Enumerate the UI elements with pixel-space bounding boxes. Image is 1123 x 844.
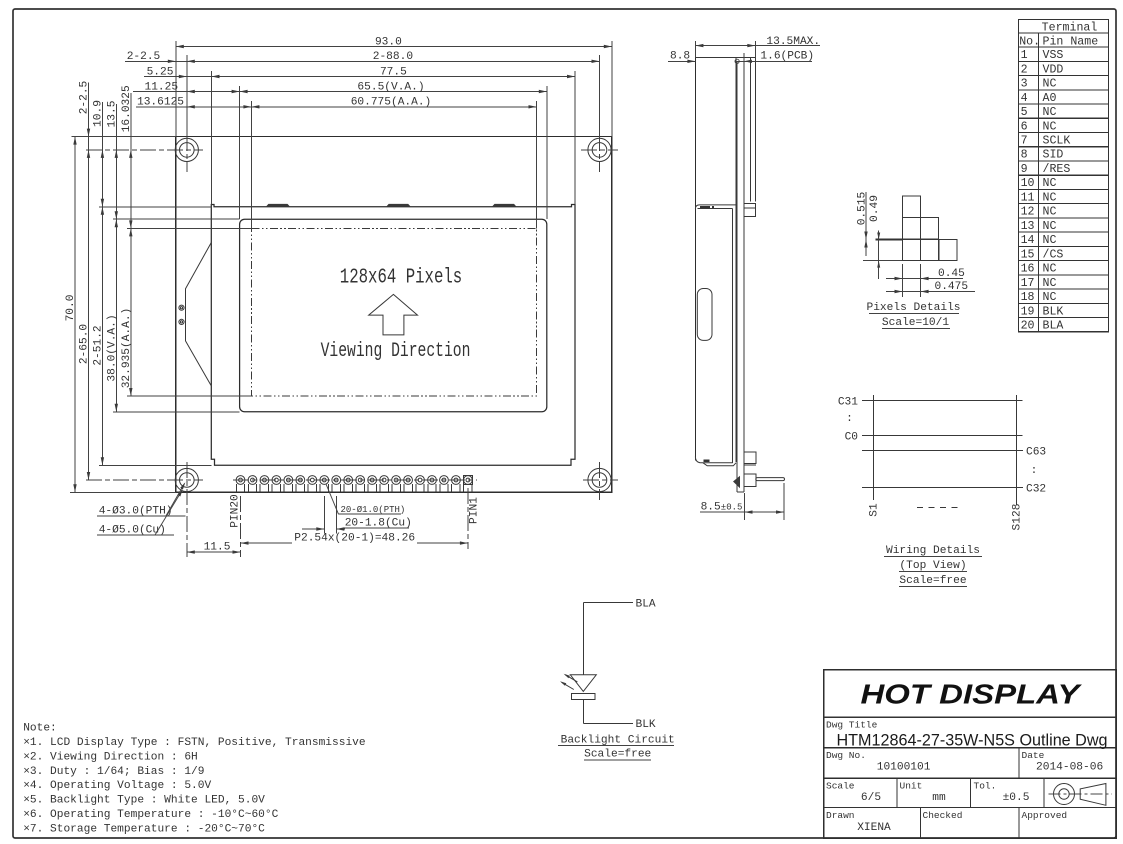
svg-text:128x64 Pixels: 128x64 Pixels [340, 264, 462, 289]
svg-text:32.935(A.A.): 32.935(A.A.) [121, 308, 133, 389]
svg-text:93.0: 93.0 [375, 36, 402, 48]
svg-text:Scale=10/1: Scale=10/1 [882, 317, 949, 329]
svg-text:NC: NC [1043, 220, 1057, 233]
svg-text:4: 4 [1021, 92, 1028, 105]
svg-text:11.5: 11.5 [204, 541, 231, 553]
svg-text:Pixels Details: Pixels Details [867, 302, 961, 314]
svg-text::: : [1031, 465, 1038, 477]
svg-text:×5. Backlight Type : White LED: ×5. Backlight Type : White LED, 5.0V [23, 795, 265, 807]
svg-text:C0: C0 [845, 432, 859, 444]
svg-text:14: 14 [1021, 234, 1035, 247]
svg-text:NC: NC [1043, 206, 1057, 219]
svg-text:6: 6 [1021, 120, 1028, 133]
svg-text:Scale=free: Scale=free [584, 749, 651, 761]
svg-text:19: 19 [1021, 305, 1035, 318]
svg-text:A0: A0 [1043, 92, 1057, 105]
svg-text:77.5: 77.5 [380, 66, 407, 78]
svg-text::: : [846, 413, 853, 425]
svg-text:8.5: 8.5 [701, 502, 721, 514]
svg-text:15: 15 [1021, 248, 1035, 261]
svg-text:/CS: /CS [1043, 248, 1064, 261]
svg-text:5: 5 [1021, 106, 1028, 119]
svg-text:2-2.5: 2-2.5 [79, 81, 91, 115]
svg-text:16: 16 [1021, 263, 1035, 276]
svg-text:7: 7 [1021, 135, 1028, 148]
svg-text:2014-08-06: 2014-08-06 [1036, 762, 1103, 774]
svg-text:NC: NC [1043, 234, 1057, 247]
svg-text:C63: C63 [1026, 447, 1046, 459]
svg-text:NC: NC [1043, 291, 1057, 304]
svg-text:10: 10 [1021, 177, 1035, 190]
svg-text:6/5: 6/5 [861, 792, 881, 804]
svg-text:S128: S128 [1012, 504, 1024, 531]
svg-text:×2. Viewing Direction : 6H: ×2. Viewing Direction : 6H [23, 751, 198, 763]
svg-text:9: 9 [1021, 163, 1028, 176]
svg-text:BLA: BLA [636, 598, 656, 610]
svg-text:Approved: Approved [1022, 810, 1068, 821]
svg-text:17: 17 [1021, 277, 1035, 290]
svg-text:0.475: 0.475 [935, 281, 969, 293]
svg-text:70.0: 70.0 [65, 294, 77, 321]
svg-text:P2.54x(20-1)=48.26: P2.54x(20-1)=48.26 [294, 532, 415, 544]
svg-text:Pin Name: Pin Name [1043, 36, 1099, 49]
svg-text:(Top View): (Top View) [899, 560, 966, 572]
svg-text:No.: No. [1019, 36, 1040, 49]
svg-text:S1: S1 [869, 503, 881, 517]
svg-text:NC: NC [1043, 191, 1057, 204]
svg-text:C32: C32 [1026, 484, 1046, 496]
svg-text:20: 20 [1021, 320, 1035, 333]
svg-text:HTM12864-27-35W-N5S Outline Dw: HTM12864-27-35W-N5S Outline Dwg [837, 731, 1108, 750]
svg-text:×6. Operating Temperature : -1: ×6. Operating Temperature : -10°C~60°C [23, 809, 278, 821]
svg-text:BLK: BLK [636, 719, 656, 731]
svg-text:Drawn: Drawn [826, 810, 855, 821]
svg-text:BLA: BLA [1043, 320, 1064, 333]
svg-text:13.5: 13.5 [107, 101, 119, 128]
svg-text:Note:: Note: [23, 722, 57, 734]
svg-text:Viewing Direction: Viewing Direction [321, 340, 471, 363]
svg-text:10.9: 10.9 [93, 100, 105, 127]
svg-text:13.6125: 13.6125 [137, 97, 184, 109]
svg-text:NC: NC [1043, 78, 1057, 91]
svg-text:13.5MAX.: 13.5MAX. [766, 36, 820, 48]
svg-text:20-Ø1.0(PTH): 20-Ø1.0(PTH) [341, 505, 406, 515]
svg-text:2-2.5: 2-2.5 [127, 51, 161, 63]
svg-text:16.0325: 16.0325 [121, 85, 133, 132]
svg-text:SID: SID [1043, 149, 1064, 162]
svg-text:NC: NC [1043, 277, 1057, 290]
svg-text:0.515: 0.515 [856, 192, 868, 226]
svg-text:×7. Storage Temperature : -20°: ×7. Storage Temperature : -20°C~70°C [23, 824, 265, 836]
svg-text:PIN20: PIN20 [230, 494, 242, 528]
svg-text:Unit: Unit [900, 781, 923, 792]
svg-text:11.25: 11.25 [145, 81, 179, 93]
svg-text:VDD: VDD [1043, 63, 1064, 76]
svg-text:5.25: 5.25 [147, 66, 174, 78]
svg-text:Terminal: Terminal [1042, 21, 1098, 34]
svg-text:Checked: Checked [923, 810, 963, 821]
svg-text:NC: NC [1043, 106, 1057, 119]
svg-text:13: 13 [1021, 220, 1035, 233]
svg-text:PIN1: PIN1 [469, 497, 481, 524]
svg-text:12: 12 [1021, 206, 1035, 219]
svg-text:0.45: 0.45 [938, 268, 965, 280]
svg-text:10100101: 10100101 [877, 762, 931, 774]
svg-text:BLK: BLK [1043, 305, 1064, 318]
svg-text:Tol.: Tol. [974, 781, 997, 792]
svg-text:Scale=free: Scale=free [899, 575, 966, 587]
svg-text:3: 3 [1021, 78, 1028, 91]
svg-text:2: 2 [1021, 63, 1028, 76]
svg-text:2-88.0: 2-88.0 [373, 51, 414, 63]
svg-text:HOT DISPLAY: HOT DISPLAY [861, 679, 1083, 710]
svg-text:2-65.0: 2-65.0 [79, 324, 91, 365]
svg-text:NC: NC [1043, 177, 1057, 190]
svg-text:Scale: Scale [826, 781, 855, 792]
svg-text:38.0(V.A.): 38.0(V.A.) [107, 314, 119, 381]
svg-text:SCLK: SCLK [1043, 135, 1071, 148]
svg-text:0.49: 0.49 [869, 195, 881, 222]
svg-text:XIENA: XIENA [857, 822, 891, 834]
svg-text:60.775(A.A.): 60.775(A.A.) [351, 97, 432, 109]
svg-text:2-51.2: 2-51.2 [93, 325, 105, 365]
svg-text:11: 11 [1021, 191, 1035, 204]
svg-text:NC: NC [1043, 120, 1057, 133]
svg-text:8.8: 8.8 [670, 51, 690, 63]
svg-text:±0.5: ±0.5 [721, 503, 743, 513]
svg-text:×1. LCD Display Type : FSTN, P: ×1. LCD Display Type : FSTN, Positive, T… [23, 737, 365, 749]
svg-text:×4. Operating Voltage : 5.0V: ×4. Operating Voltage : 5.0V [23, 780, 211, 792]
svg-text:×3. Duty : 1/64; Bias : 1/9: ×3. Duty : 1/64; Bias : 1/9 [23, 766, 204, 778]
svg-text:±0.5: ±0.5 [1003, 792, 1030, 804]
svg-text:NC: NC [1043, 263, 1057, 276]
svg-text:mm: mm [932, 792, 946, 804]
svg-text:8: 8 [1021, 149, 1028, 162]
svg-text:Wiring Details: Wiring Details [886, 545, 980, 557]
svg-text:65.5(V.A.): 65.5(V.A.) [357, 81, 424, 93]
svg-text:1.6(PCB): 1.6(PCB) [760, 51, 814, 63]
svg-text:VSS: VSS [1043, 49, 1064, 62]
svg-text:Dwg Title: Dwg Title [826, 720, 878, 731]
svg-text:Backlight Circuit: Backlight Circuit [561, 734, 675, 746]
svg-text:/RES: /RES [1043, 163, 1071, 176]
svg-text:Dwg No.: Dwg No. [826, 750, 866, 761]
svg-text:C31: C31 [838, 397, 858, 409]
svg-text:18: 18 [1021, 291, 1035, 304]
svg-text:1: 1 [1021, 49, 1028, 62]
svg-text:Date: Date [1022, 750, 1045, 761]
